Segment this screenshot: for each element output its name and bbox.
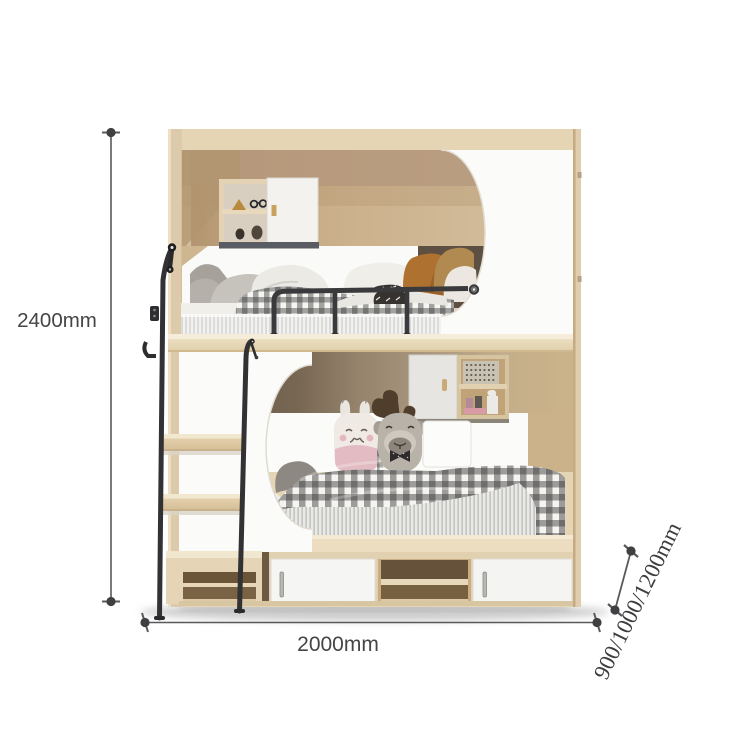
svg-text:2000mm: 2000mm [297,633,379,656]
svg-text:2400mm: 2400mm [17,309,97,332]
